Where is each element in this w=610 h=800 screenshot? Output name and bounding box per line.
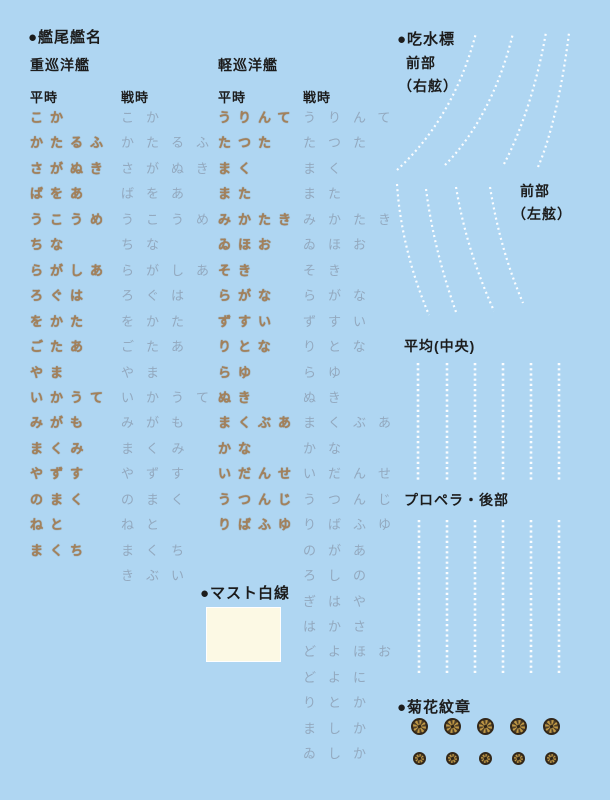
stern-name: ゐしか bbox=[303, 747, 378, 760]
stern-name: ましか bbox=[303, 722, 378, 735]
mast-white-line-title: ●マスト白線 bbox=[200, 582, 290, 603]
stern-name: こか bbox=[121, 111, 171, 124]
stern-name: みがも bbox=[30, 416, 90, 429]
stern-name: まくち bbox=[121, 544, 196, 557]
chrysanthemum-crest-icon bbox=[444, 718, 461, 735]
stern-name: やま bbox=[121, 366, 171, 379]
stern-name: かたるふ bbox=[30, 136, 110, 149]
stern-name: ごたあ bbox=[30, 340, 90, 353]
stern-name: ぎはや bbox=[303, 595, 378, 608]
stern-name: まく bbox=[303, 162, 353, 175]
stern-name: まく bbox=[218, 162, 258, 175]
chrysanthemum-crest-icon bbox=[477, 718, 494, 735]
heavy-wartime-header: 戦時 bbox=[121, 87, 149, 106]
stern-name: ばをあ bbox=[121, 187, 196, 200]
light-peacetime-header: 平時 bbox=[218, 87, 246, 106]
stern-name: りとな bbox=[303, 340, 378, 353]
stern-name: ろしの bbox=[303, 569, 378, 582]
stern-name: やずす bbox=[121, 467, 196, 480]
chrysanthemum-crest-title: ●菊花紋章 bbox=[397, 696, 471, 717]
stern-name: さがぬき bbox=[30, 162, 110, 175]
stern-name: うつんじ bbox=[218, 493, 298, 506]
stern-name: やま bbox=[30, 366, 70, 379]
mast-white-line-swatch bbox=[206, 607, 281, 662]
heavy-peacetime-header: 平時 bbox=[30, 87, 58, 106]
stern-name: さがぬき bbox=[121, 162, 221, 175]
chrysanthemum-crest-icon bbox=[413, 752, 426, 765]
front-port-label: （左舷） bbox=[512, 204, 572, 224]
stern-name: うこうめ bbox=[30, 213, 110, 226]
stern-name: うこうめ bbox=[121, 213, 221, 226]
stern-name: また bbox=[303, 187, 353, 200]
stern-name: そき bbox=[303, 264, 353, 277]
stern-name: いかうて bbox=[30, 391, 110, 404]
stern-name: らゆ bbox=[218, 366, 258, 379]
stern-name: をかた bbox=[30, 315, 90, 328]
crest-row-small bbox=[413, 752, 558, 765]
stern-name: りばふゆ bbox=[303, 518, 403, 531]
stern-name: まくぶあ bbox=[218, 416, 298, 429]
stern-name: いかうて bbox=[121, 391, 221, 404]
stern-name: うつんじ bbox=[303, 493, 403, 506]
draft-marks-title: ●吃水標 bbox=[397, 28, 455, 49]
stern-name: かな bbox=[218, 442, 258, 455]
stern-name: りばふゆ bbox=[218, 518, 298, 531]
stern-name: みがも bbox=[121, 416, 196, 429]
stern-name: どよに bbox=[303, 671, 378, 684]
stern-name: らゆ bbox=[303, 366, 353, 379]
stern-name: ちな bbox=[30, 238, 70, 251]
stern-name: まくち bbox=[30, 544, 90, 557]
crest-row-large bbox=[411, 718, 560, 735]
light-wartime-header: 戦時 bbox=[303, 87, 331, 106]
stern-name: のまく bbox=[121, 493, 196, 506]
chrysanthemum-crest-icon bbox=[512, 752, 525, 765]
stern-name: みかたき bbox=[218, 213, 298, 226]
stern-name: ずすい bbox=[218, 315, 278, 328]
stern-name: らがな bbox=[218, 289, 278, 302]
stern-name: まくみ bbox=[121, 442, 197, 455]
stern-name: いだんせ bbox=[218, 467, 298, 480]
stern-name: こか bbox=[30, 111, 70, 124]
stern-name: ろぐは bbox=[30, 289, 90, 302]
stern-name: らがしあ bbox=[121, 264, 221, 277]
stern-name: また bbox=[218, 187, 258, 200]
stern-name: のがあ bbox=[303, 544, 378, 557]
stern-name: ぬき bbox=[218, 391, 258, 404]
stern-name: うりんて bbox=[218, 111, 297, 124]
chrysanthemum-crest-icon bbox=[411, 718, 428, 735]
stern-name: まくみ bbox=[30, 442, 91, 455]
stern-name: かな bbox=[303, 442, 353, 455]
stern-name: ねと bbox=[121, 518, 171, 531]
stern-name: みかたき bbox=[303, 213, 403, 226]
chrysanthemum-crest-icon bbox=[510, 718, 527, 735]
propeller-stern-label: プロペラ・後部 bbox=[404, 490, 509, 510]
middle-draft-label: 平均(中央) bbox=[404, 336, 475, 356]
light-cruiser-label: 軽巡洋艦 bbox=[218, 55, 278, 75]
chrysanthemum-crest-icon bbox=[479, 752, 492, 765]
stern-name: りとな bbox=[218, 340, 278, 353]
stern-name: ごたあ bbox=[121, 340, 196, 353]
stern-name: うりんて bbox=[303, 111, 402, 124]
heavy-cruiser-label: 重巡洋艦 bbox=[30, 55, 90, 75]
front-port-front-label: 前部 bbox=[520, 181, 550, 201]
draft-marks-front-port bbox=[397, 184, 523, 315]
stern-name: らがしあ bbox=[30, 264, 110, 277]
stern-name: のまく bbox=[30, 493, 90, 506]
front-label: 前部 bbox=[406, 53, 436, 73]
chrysanthemum-crest-icon bbox=[545, 752, 558, 765]
stern-name: たつた bbox=[303, 136, 378, 149]
stern-name: ろぐは bbox=[121, 289, 196, 302]
front-starboard-label: （右舷） bbox=[398, 76, 458, 96]
stern-name: りとか bbox=[303, 696, 378, 709]
stern-name: らがな bbox=[303, 289, 378, 302]
stern-name: まくぶあ bbox=[303, 416, 403, 429]
stern-name: をかた bbox=[121, 315, 196, 328]
stern-name: そき bbox=[218, 264, 258, 277]
chrysanthemum-crest-icon bbox=[543, 718, 560, 735]
stern-names-title: ●艦尾艦名 bbox=[28, 26, 102, 47]
draft-marks-propeller-stern bbox=[419, 520, 559, 674]
stern-name: かたるふ bbox=[121, 136, 221, 149]
draft-marks-middle bbox=[418, 363, 559, 480]
stern-name: ずすい bbox=[303, 315, 378, 328]
stern-name: ゐほお bbox=[303, 238, 378, 251]
stern-name: どよほお bbox=[303, 645, 403, 658]
stern-name: やずす bbox=[30, 467, 90, 480]
chrysanthemum-crest-icon bbox=[446, 752, 459, 765]
stern-name: ぬき bbox=[303, 391, 353, 404]
stern-name: ばをあ bbox=[30, 187, 90, 200]
decal-sheet: ●艦尾艦名 重巡洋艦 軽巡洋艦 平時 戦時 平時 戦時 こかかたるふさがぬきばを… bbox=[0, 0, 610, 800]
stern-name: ゐほお bbox=[218, 238, 278, 251]
stern-name: はかさ bbox=[303, 620, 378, 633]
stern-name: いだんせ bbox=[303, 467, 403, 480]
stern-name: きぶい bbox=[121, 569, 196, 582]
stern-name: ちな bbox=[121, 238, 171, 251]
stern-name: ねと bbox=[30, 518, 70, 531]
stern-name: たつた bbox=[218, 136, 278, 149]
